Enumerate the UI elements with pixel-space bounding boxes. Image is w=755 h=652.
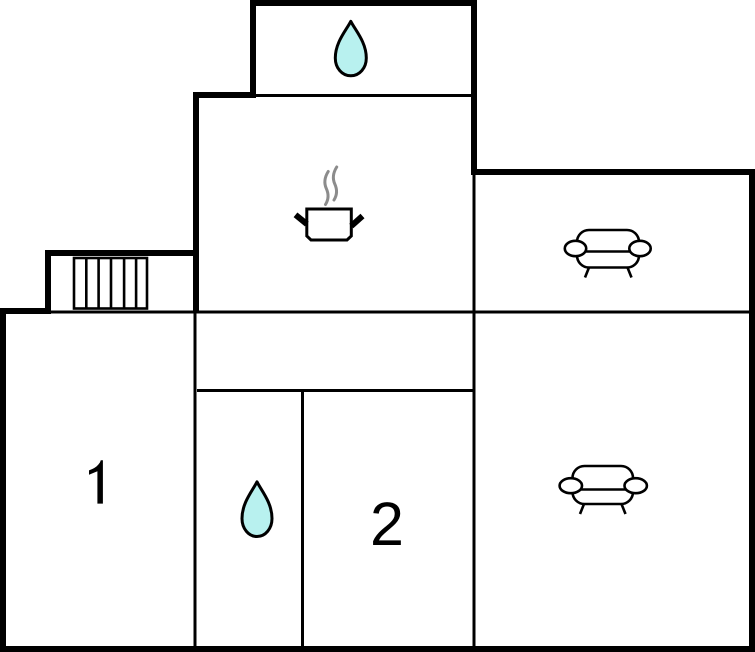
svg-text:2: 2: [370, 490, 404, 558]
